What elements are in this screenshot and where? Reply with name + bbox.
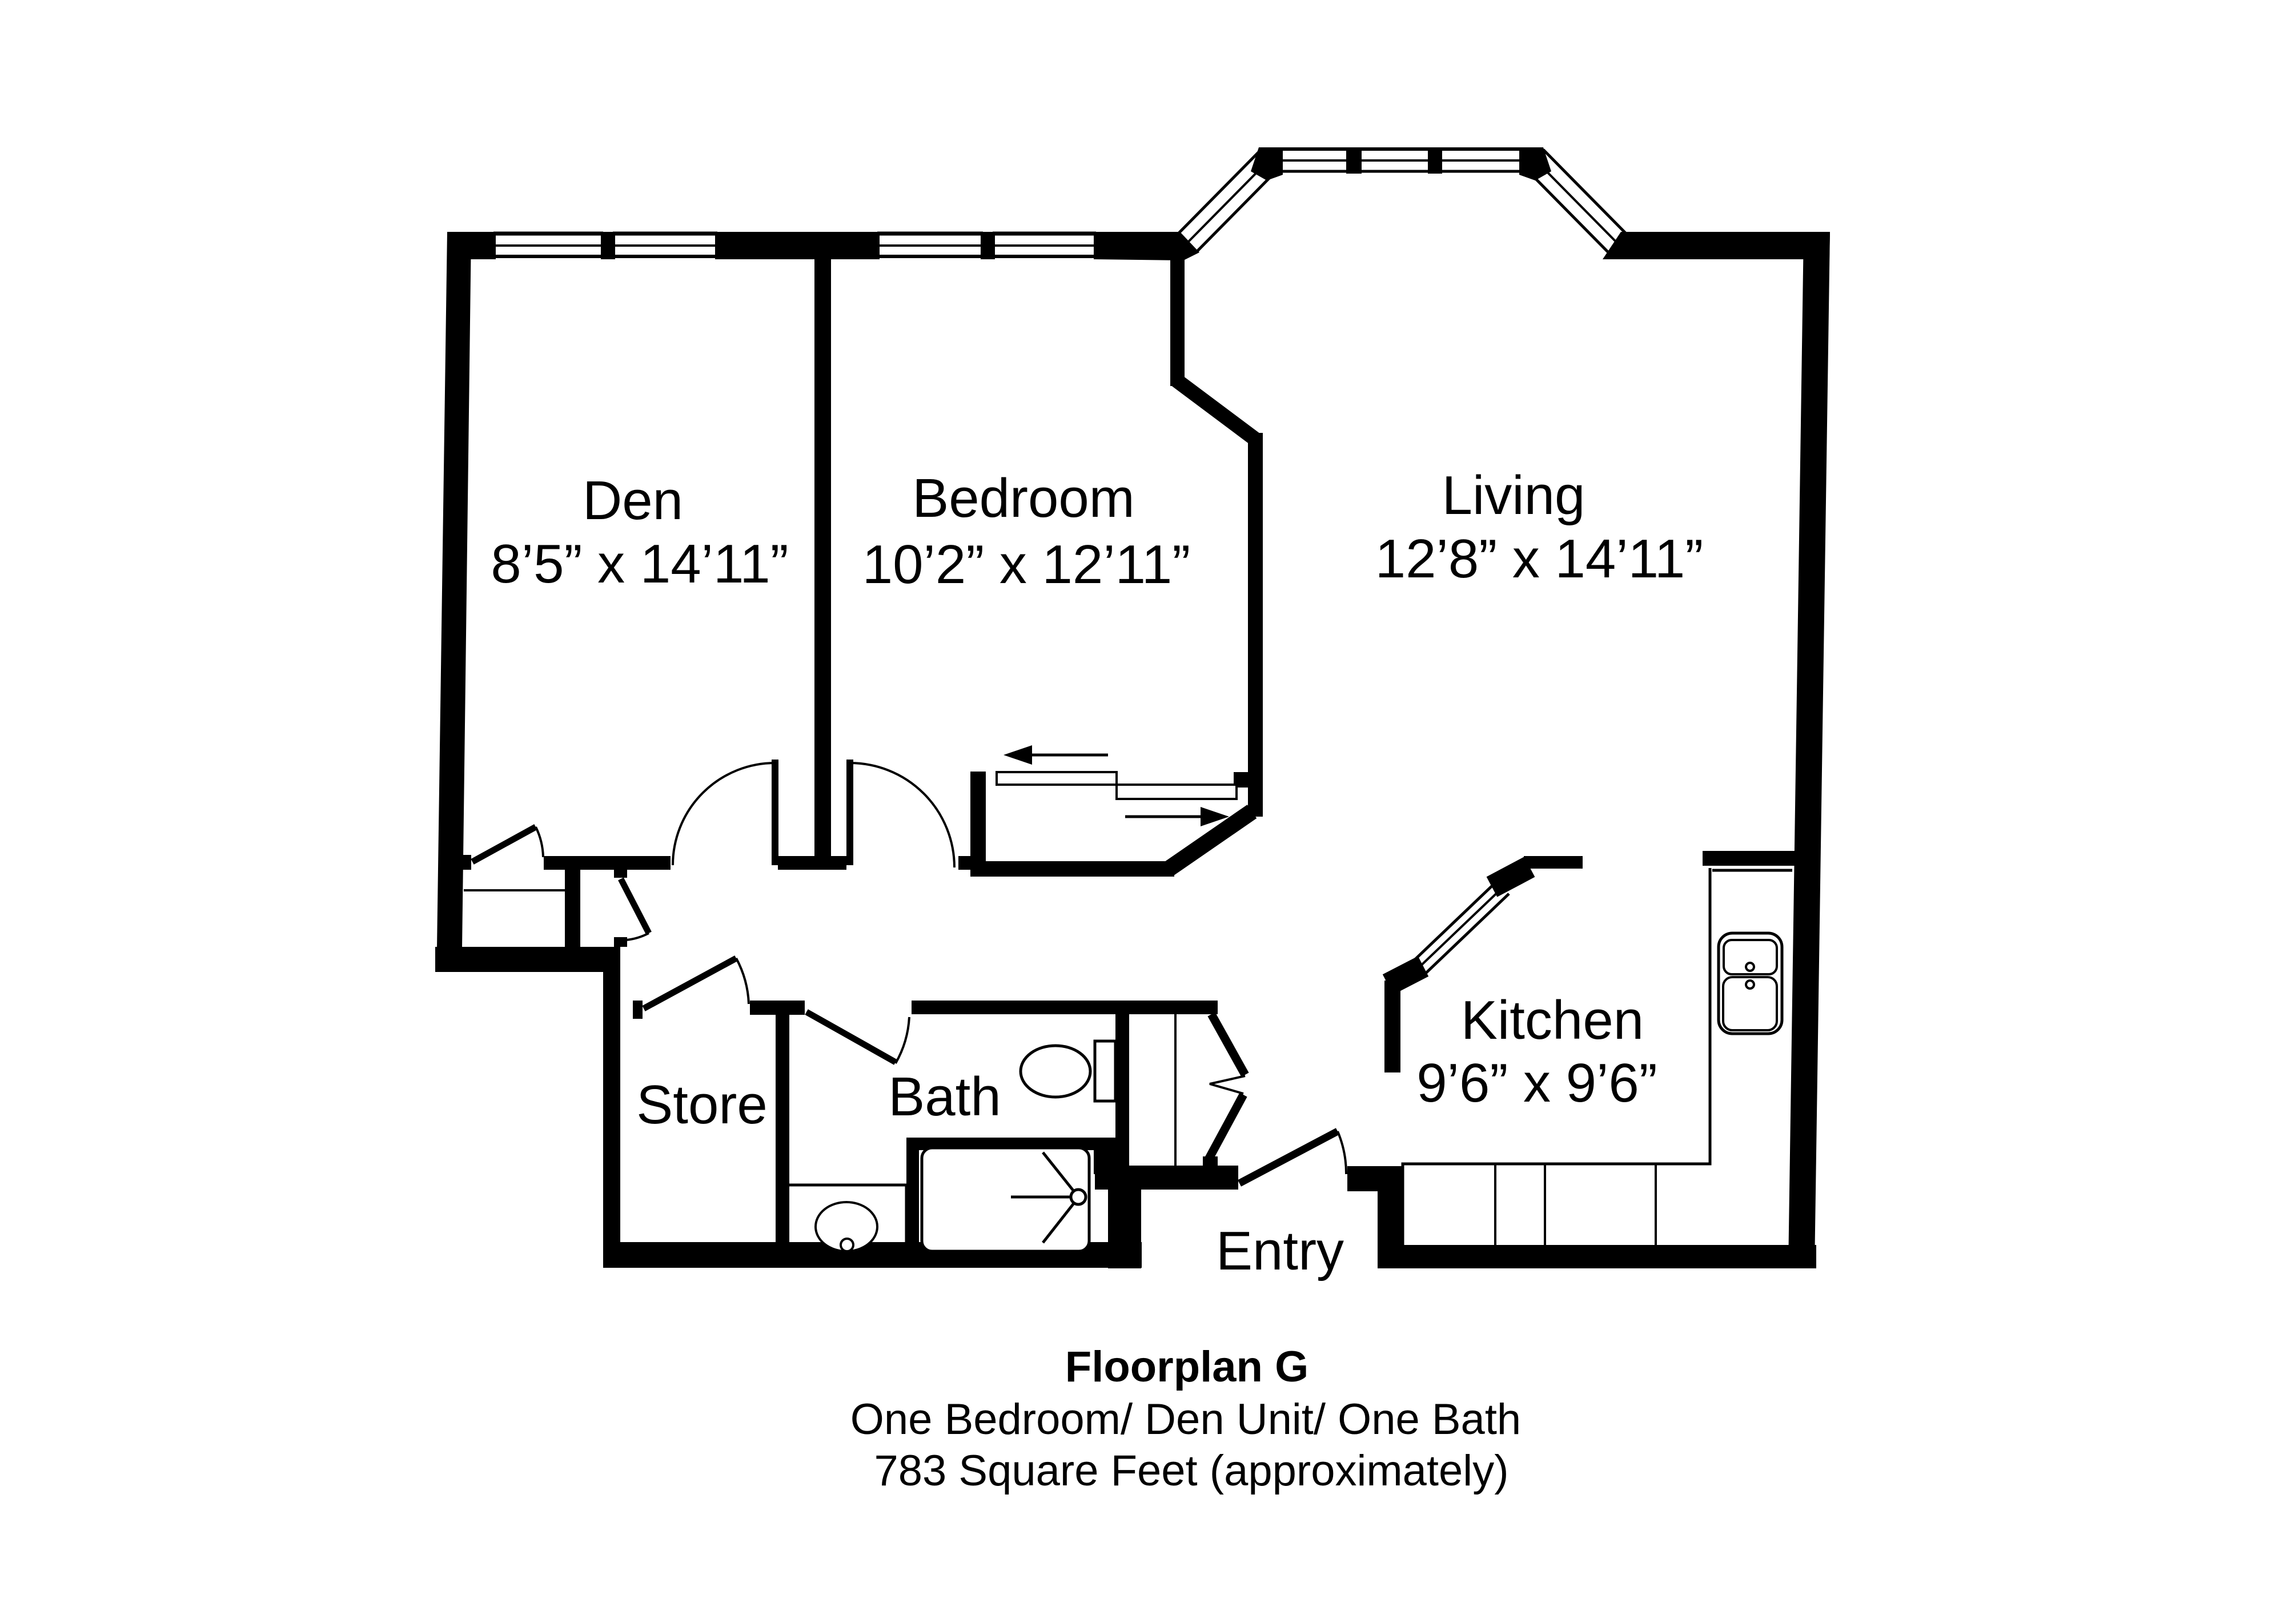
svg-text:One Bedroom/ Den Unit/ One Bat: One Bedroom/ Den Unit/ One Bath — [850, 1395, 1521, 1444]
svg-text:783 Square Feet (approximately: 783 Square Feet (approximately) — [874, 1447, 1508, 1495]
svg-text:Store: Store — [636, 1074, 767, 1135]
svg-text:9’6” x 9’6”: 9’6” x 9’6” — [1416, 1052, 1657, 1114]
svg-text:8’5” x 14’11”: 8’5” x 14’11” — [491, 533, 788, 594]
svg-text:Bedroom: Bedroom — [912, 468, 1135, 529]
svg-text:Kitchen: Kitchen — [1461, 990, 1644, 1051]
svg-text:10’2” x 12’11”: 10’2” x 12’11” — [862, 534, 1191, 595]
svg-text:Entry: Entry — [1216, 1220, 1344, 1281]
svg-text:Living: Living — [1442, 465, 1585, 526]
svg-text:12’8” x 14’11”: 12’8” x 14’11” — [1375, 528, 1704, 589]
svg-text:Floorplan G: Floorplan G — [1065, 1343, 1308, 1391]
svg-text:Bath: Bath — [888, 1066, 1001, 1127]
svg-text:Den: Den — [583, 470, 683, 531]
